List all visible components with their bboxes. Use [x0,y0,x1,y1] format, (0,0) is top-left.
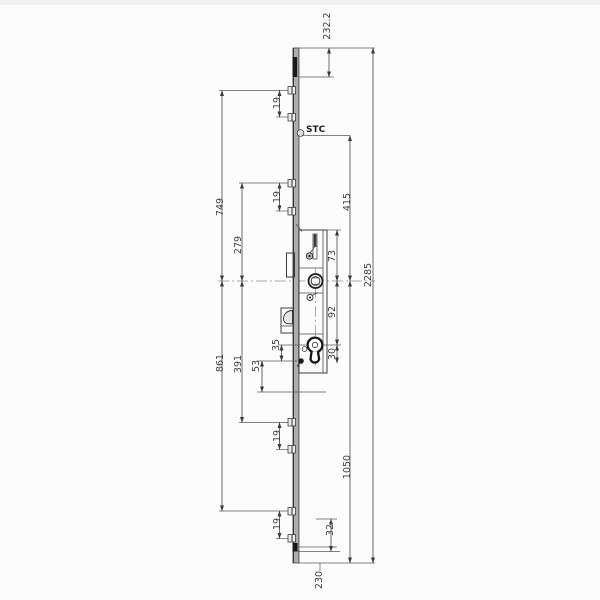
dim-stc: STC [306,125,326,135]
faceplate [293,48,304,563]
dim-19-upper: 19 [272,191,283,203]
latch-bolt [281,308,293,333]
dim-35: 35 [271,339,282,351]
dim-279: 279 [233,236,244,254]
dim-32: 32 [325,524,336,536]
euro-cylinder-cutout [308,338,323,363]
dim-230: 230 [314,571,325,589]
spring-mechanism [306,234,317,259]
dim-861: 861 [215,354,226,372]
dim-232-2: 232.2 [322,12,333,39]
dim-53: 53 [251,360,262,372]
lever-detail [307,293,318,301]
bottom-shoot-bolt [293,543,298,552]
dim-19-lower: 19 [272,430,283,442]
dim-92: 92 [327,306,338,318]
lock-case [296,224,327,373]
lock-technical-drawing: 232.2 STC 19 19 19 19 749 279 861 391 53… [0,0,600,600]
dim-19-top: 19 [272,97,283,109]
dim-1050: 1050 [342,455,353,479]
dim-749: 749 [215,198,226,216]
dim-2285: 2285 [363,263,374,287]
dim-19-bottom: 19 [272,518,283,530]
dim-30: 30 [327,348,338,360]
dim-73: 73 [327,250,338,262]
top-shoot-bolt [293,57,298,77]
drawing-canvas: 232.2 STC 19 19 19 19 749 279 861 391 53… [0,0,600,600]
fixing-hole [302,347,307,352]
spindle-follower [309,274,323,288]
dim-391: 391 [233,355,244,373]
dim-415: 415 [342,193,353,211]
